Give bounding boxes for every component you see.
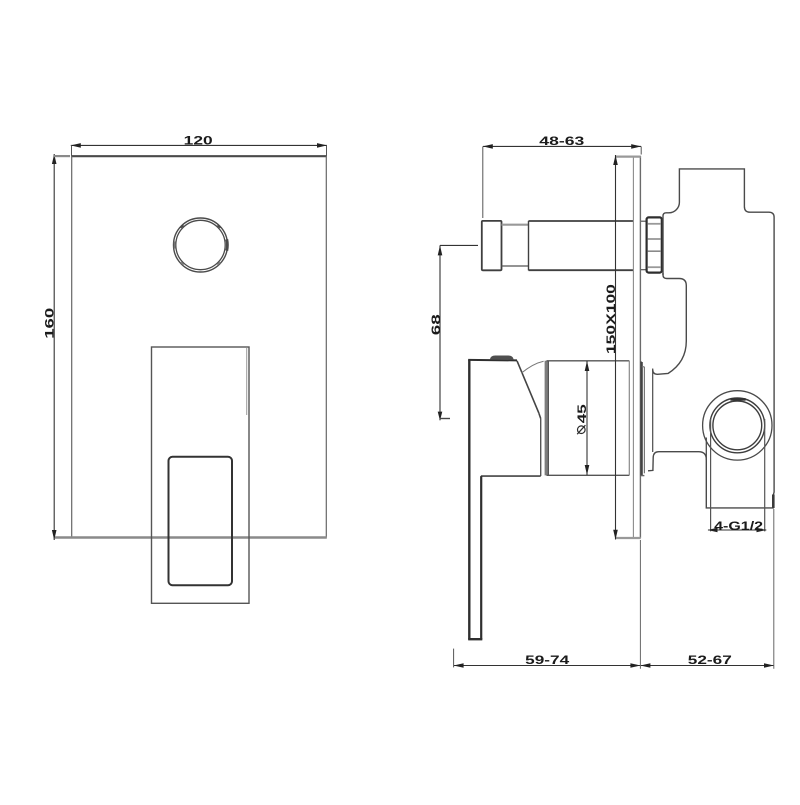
svg-text:48-63: 48-63 xyxy=(539,136,584,148)
svg-text:150X100: 150X100 xyxy=(606,284,618,354)
svg-text:120: 120 xyxy=(184,135,213,147)
svg-text:59-74: 59-74 xyxy=(525,655,570,667)
svg-text:45: 45 xyxy=(577,403,589,423)
svg-text:68: 68 xyxy=(431,313,443,335)
svg-text:52-67: 52-67 xyxy=(688,655,732,667)
svg-text:160: 160 xyxy=(44,308,56,339)
svg-text:4-G1/2: 4-G1/2 xyxy=(714,521,763,533)
